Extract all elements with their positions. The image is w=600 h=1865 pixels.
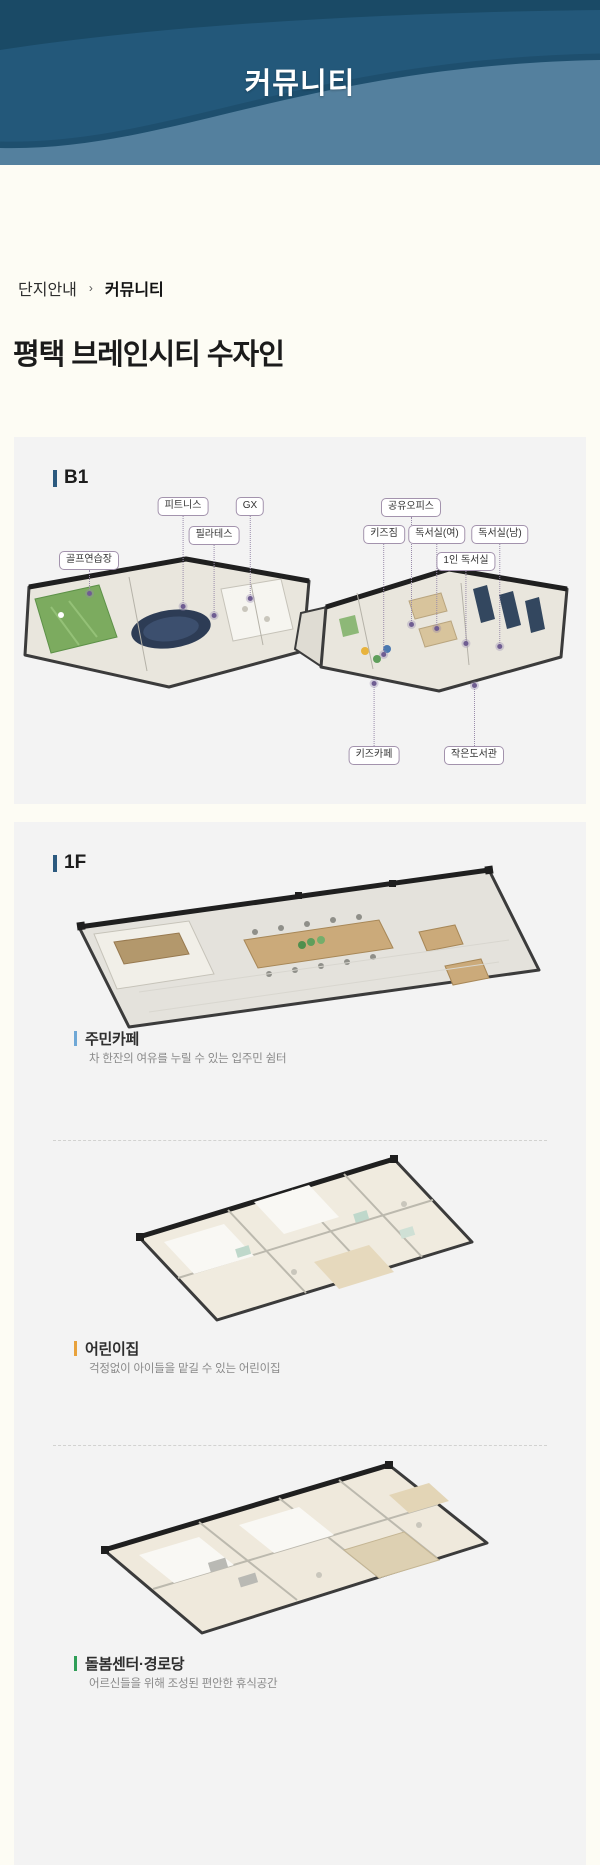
callout-leader-line	[249, 516, 250, 595]
callout-leader-line	[500, 544, 501, 643]
callout-badge: 키즈짐	[363, 525, 405, 544]
accent-bar	[74, 1031, 77, 1046]
callout-dot	[372, 681, 377, 686]
page-banner-title: 커뮤니티	[0, 60, 600, 102]
b1-section-panel: B1	[14, 437, 586, 804]
b1-callout-kids-gym: 키즈짐	[363, 525, 405, 658]
callout-leader-line	[183, 516, 184, 603]
callout-badge: GX	[236, 497, 264, 516]
page-header-banner: 커뮤니티	[0, 0, 600, 165]
callout-dot	[472, 683, 477, 688]
senior-center-floorplan-image	[89, 1455, 509, 1650]
callout-badge: 키즈카페	[349, 746, 400, 765]
daycare-floorplan-image	[104, 1152, 499, 1342]
callout-dot	[181, 604, 186, 609]
section-divider	[53, 1445, 547, 1446]
breadcrumb-item-community[interactable]: 커뮤니티	[105, 276, 164, 300]
accent-bar	[74, 1656, 77, 1671]
b1-callout-pilates: 필라테스	[189, 526, 240, 619]
callout-leader-line	[374, 687, 375, 746]
b1-callout-kids-cafe: 키즈카페	[349, 680, 400, 765]
daycare-label: 어린이집	[74, 1338, 139, 1359]
floor-label-bar	[53, 855, 57, 872]
breadcrumb: 단지안내 › 커뮤니티	[18, 276, 164, 300]
callout-dot	[463, 641, 468, 646]
resident-cafe-label: 주민카페	[74, 1028, 139, 1049]
callout-leader-line	[89, 570, 90, 590]
callout-leader-line	[465, 571, 466, 640]
accent-bar	[74, 1341, 77, 1356]
b1-callout-single-reading-room: 1인 독서실	[436, 552, 495, 647]
facility-name: 돌봄센터·경로당	[85, 1653, 184, 1674]
callout-badge: 피트니스	[158, 497, 209, 516]
daycare-description: 걱정없이 아이들을 맡길 수 있는 어린이집	[89, 1360, 280, 1376]
b1-callout-gx: GX	[236, 497, 264, 602]
b1-floor-label: B1	[53, 467, 88, 489]
callout-badge: 골프연습장	[59, 551, 119, 570]
callout-leader-line	[383, 544, 384, 651]
facility-name: 주민카페	[85, 1028, 139, 1049]
page-title: 평택 브레인시티 수자인	[13, 331, 284, 373]
breadcrumb-item-complex-guide[interactable]: 단지안내	[18, 276, 77, 300]
callout-dot	[381, 652, 386, 657]
senior-center-label: 돌봄센터·경로당	[74, 1653, 184, 1674]
callout-dot	[212, 613, 217, 618]
senior-center-description: 어르신들을 위해 조성된 편안한 휴식공간	[89, 1675, 277, 1691]
callout-badge: 독서실(여)	[408, 525, 465, 544]
callout-badge: 1인 독서실	[436, 552, 495, 571]
floor-label-text: B1	[64, 467, 88, 489]
callout-badge: 독서실(남)	[471, 525, 528, 544]
callout-dot	[498, 644, 503, 649]
callout-badge: 작은도서관	[444, 746, 504, 765]
facility-name: 어린이집	[85, 1338, 139, 1359]
section-divider	[53, 1140, 547, 1141]
callout-badge: 공유오피스	[381, 498, 441, 517]
f1-section-panel: 1F 주민카페 차 한잔의 여유를 누릴	[14, 822, 586, 1865]
b1-callout-golf-range: 골프연습장	[59, 551, 119, 597]
callout-badge: 필라테스	[189, 526, 240, 545]
floor-label-bar	[53, 470, 57, 487]
callout-leader-line	[214, 545, 215, 612]
callout-dot	[247, 596, 252, 601]
resident-cafe-description: 차 한잔의 여유를 누릴 수 있는 입주민 쉼터	[89, 1050, 286, 1066]
breadcrumb-separator-icon: ›	[89, 281, 93, 295]
callout-dot	[87, 591, 92, 596]
b1-callout-small-library: 작은도서관	[444, 682, 504, 765]
callout-leader-line	[474, 689, 475, 746]
